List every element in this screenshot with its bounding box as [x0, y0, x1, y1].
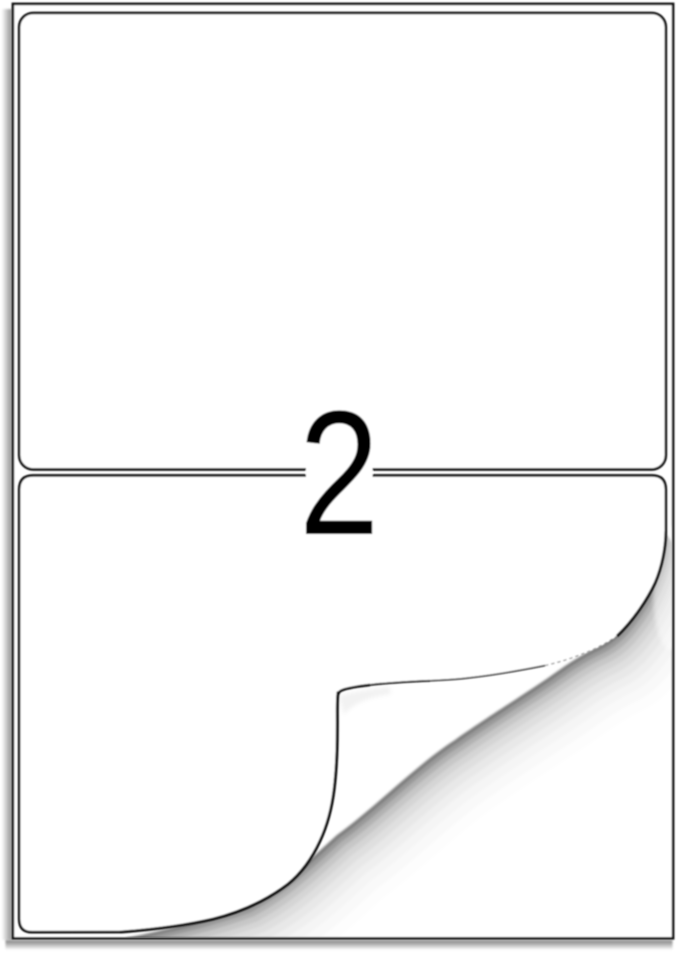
- svg-text:2: 2: [299, 374, 380, 572]
